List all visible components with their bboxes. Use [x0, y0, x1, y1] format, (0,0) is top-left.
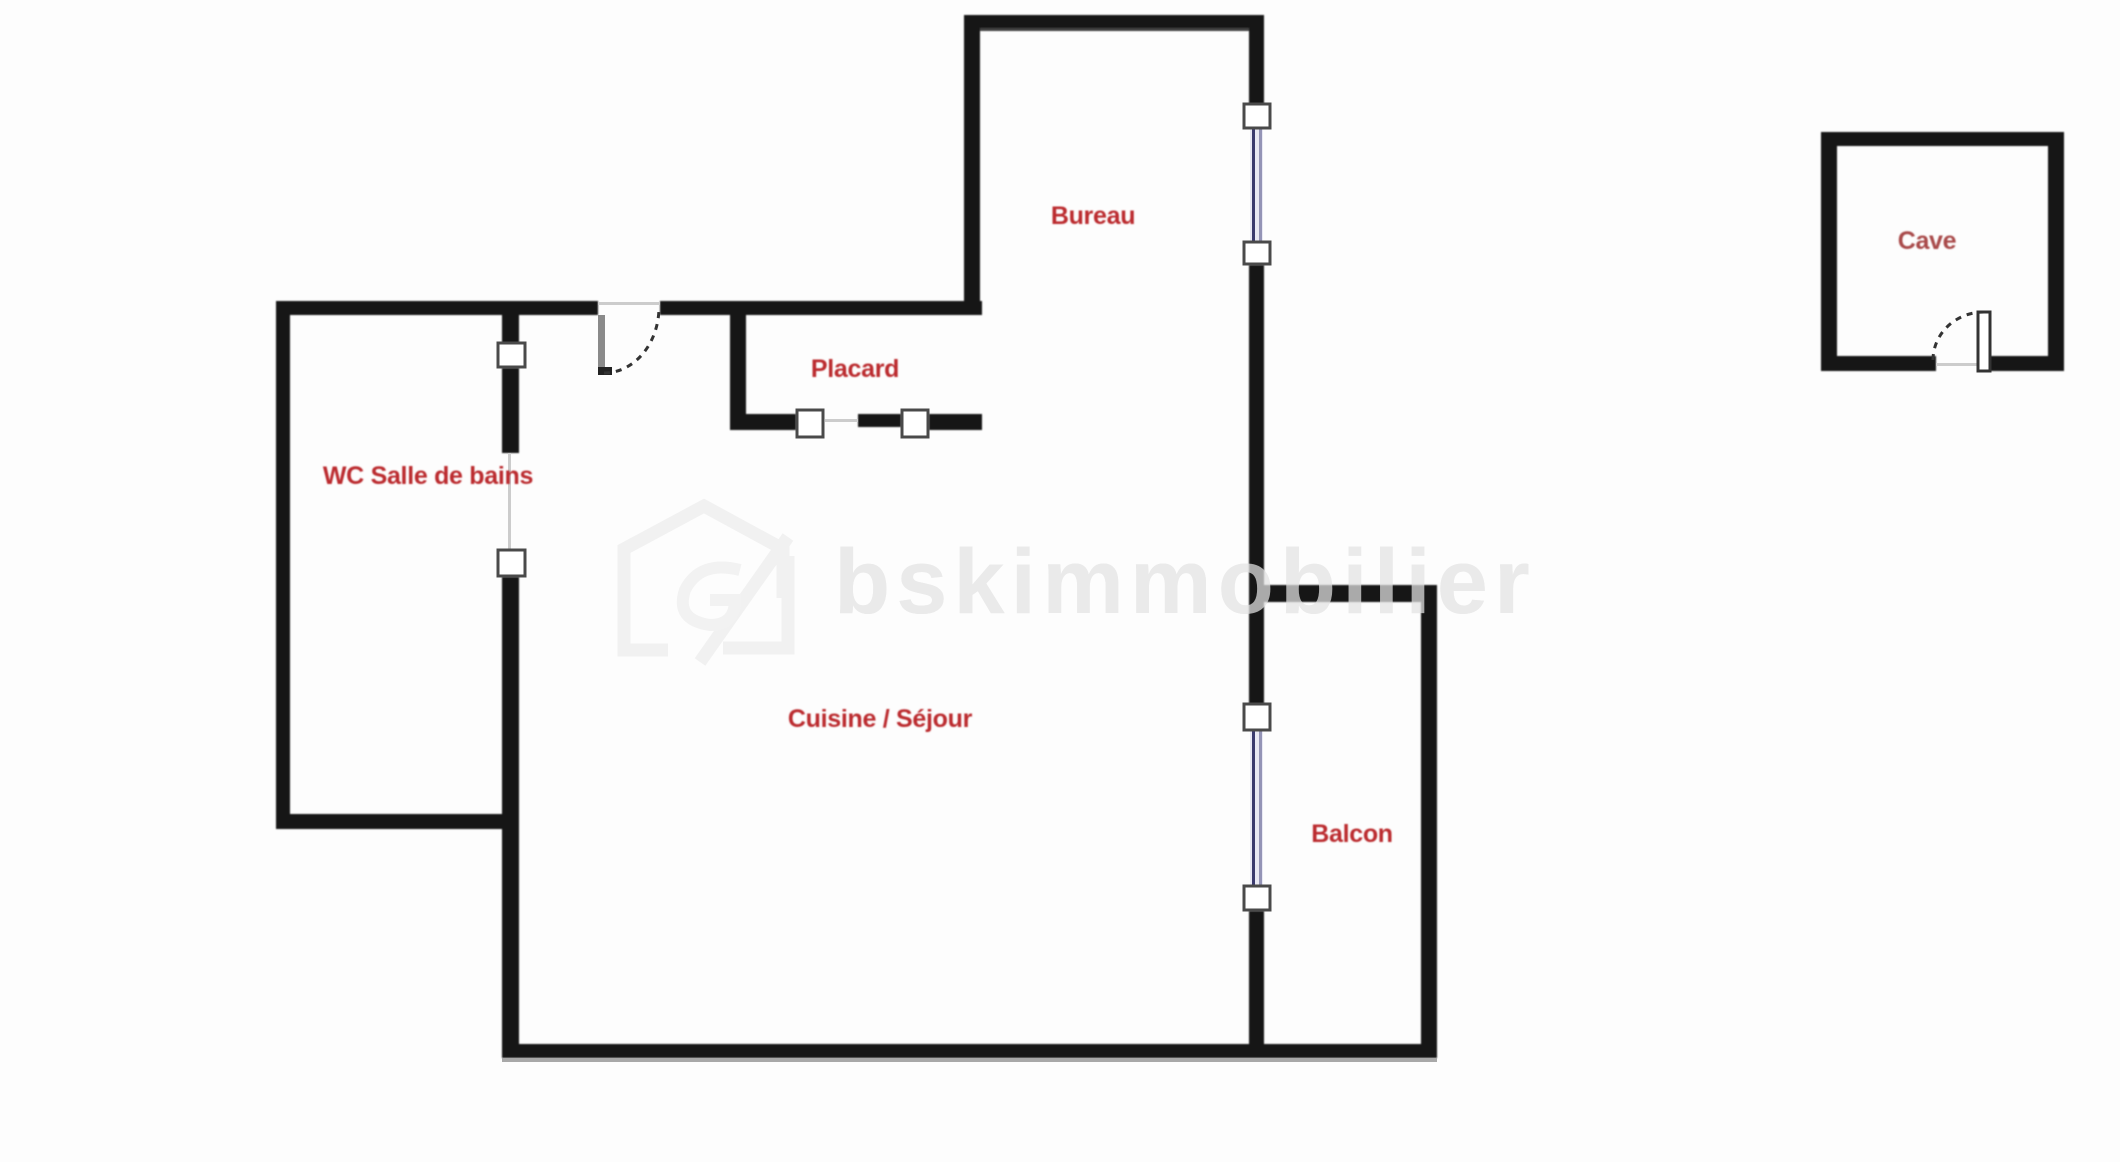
svg-text:WC Salle de bains: WC Salle de bains: [323, 462, 533, 490]
svg-text:Balcon: Balcon: [1311, 820, 1393, 848]
svg-text:bskimmobilier: bskimmobilier: [834, 531, 1536, 633]
svg-text:Placard: Placard: [811, 355, 899, 383]
svg-text:Cave: Cave: [1898, 227, 1957, 255]
svg-text:Cuisine / Séjour: Cuisine / Séjour: [788, 705, 973, 733]
svg-text:Bureau: Bureau: [1051, 202, 1135, 230]
